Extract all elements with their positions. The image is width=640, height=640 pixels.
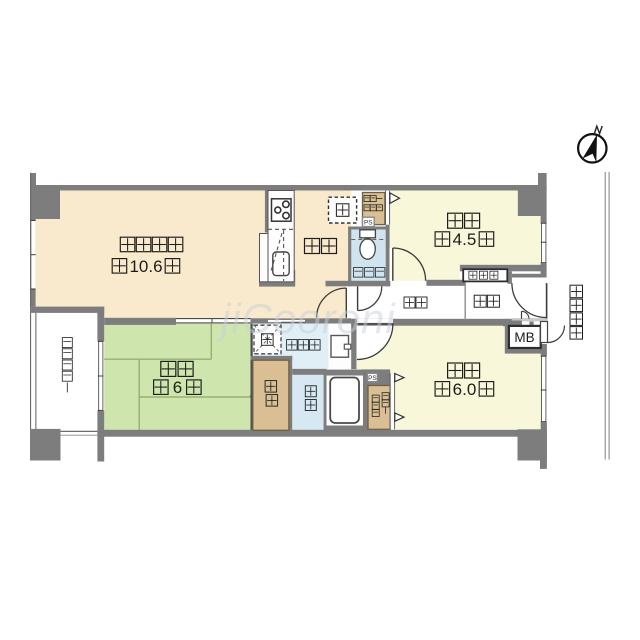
svg-text:6.0: 6.0 <box>453 380 477 399</box>
svg-text:jiCooroni: jiCooroni <box>216 295 396 342</box>
svg-text:10.6: 10.6 <box>129 257 162 276</box>
svg-text:PS: PS <box>364 219 373 226</box>
svg-text:4.5: 4.5 <box>453 230 477 249</box>
svg-text:PS: PS <box>368 375 377 382</box>
svg-text:6: 6 <box>173 378 182 397</box>
svg-text:MB: MB <box>514 330 534 345</box>
